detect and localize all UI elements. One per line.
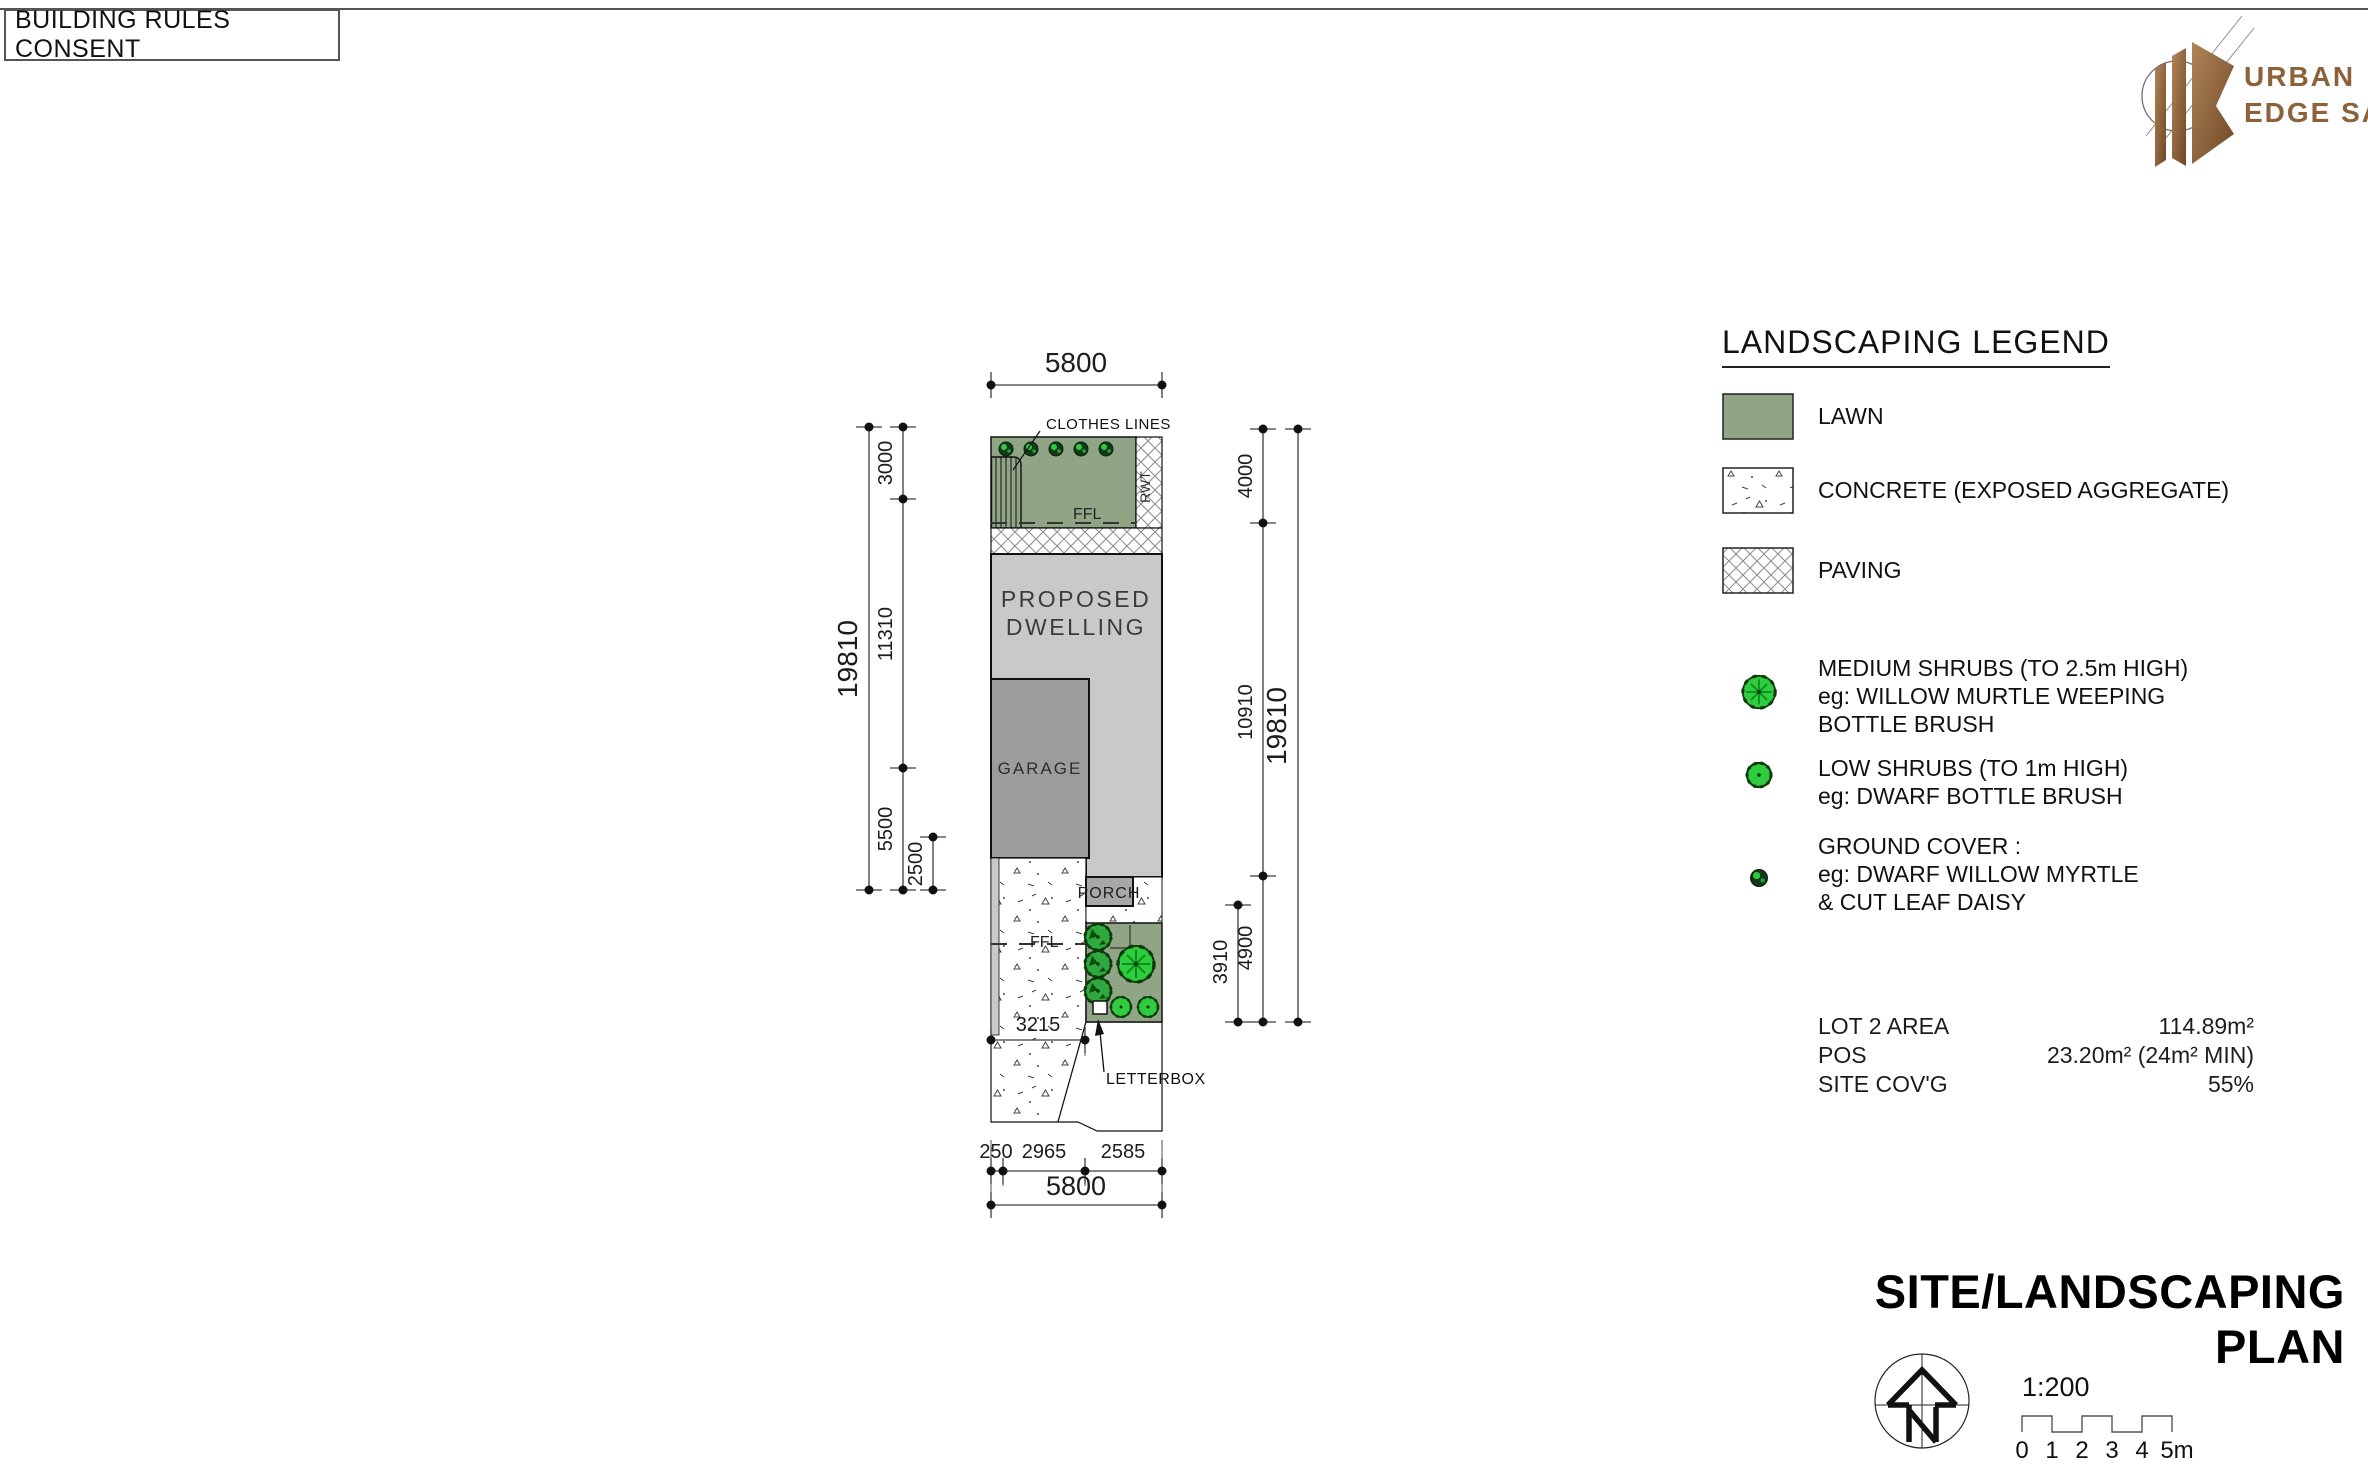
consent-title-label: BUILDING RULES CONSENT <box>15 6 338 64</box>
dim-left-seg-1: 3000 <box>875 441 897 486</box>
dwelling-label-1: PROPOSED <box>1001 586 1151 612</box>
legend-ground-line3: & CUT LEAF DAISY <box>1818 888 2139 916</box>
sheet-top-rule <box>0 8 2368 10</box>
stat-lot-area: LOT 2 AREA 114.89m² <box>1818 1012 2254 1041</box>
dim-front-offset: 3215 <box>1016 1014 1061 1036</box>
side-wall-strip <box>991 858 999 1035</box>
ground-cover-icon <box>1049 442 1063 456</box>
stat-pos-label: POS <box>1818 1041 1867 1070</box>
scale-label: 1:200 <box>2022 1372 2090 1403</box>
dim-bot-seg-1: 250 <box>979 1141 1012 1163</box>
drawing-sheet: BUILDING RULES CONSENT URBAN EDGE SA <box>0 0 2368 1483</box>
legend-item-lawn: LAWN <box>1722 393 1884 440</box>
dim-right-seg-2: 10910 <box>1235 684 1257 740</box>
medium-shrub-icon <box>1118 946 1154 982</box>
ground-cover-icon <box>1747 866 1771 890</box>
dim-left-seg-2: 11310 <box>875 607 897 661</box>
stat-site-coverage-label: SITE COV'G <box>1818 1070 1948 1099</box>
dim-left-total: 19810 <box>832 620 863 698</box>
legend-text-low-shrubs: LOW SHRUBS (TO 1m HIGH) eg: DWARF BOTTLE… <box>1818 754 2128 810</box>
site-statistics: LOT 2 AREA 114.89m² POS 23.20m² (24m² MI… <box>1818 1012 2254 1099</box>
legend-text-medium-shrubs: MEDIUM SHRUBS (TO 2.5m HIGH) eg: WILLOW … <box>1818 654 2188 738</box>
scale-bar-ticks: 0 1 2 3 4 5m <box>2015 1437 2193 1464</box>
dim-left-seg-3: 5500 <box>875 807 897 852</box>
plan-title: SITE/LANDSCAPING PLAN <box>1740 1264 2345 1374</box>
logo-mark-icon <box>2142 16 2254 167</box>
stat-pos-value: 23.20m² (24m² MIN) <box>2047 1041 2254 1070</box>
stat-site-coverage-value: 55% <box>2208 1070 2254 1099</box>
low-shrub-icon <box>1742 758 1776 792</box>
north-arrow-icon <box>1866 1342 1978 1460</box>
ground-cover-icon <box>1074 442 1088 456</box>
landscaping-legend: LANDSCAPING LEGEND LAWN CONCRETE (EXPOSE… <box>1722 318 2342 1118</box>
stat-lot-area-label: LOT 2 AREA <box>1818 1012 1949 1041</box>
concrete-swatch-icon <box>1722 467 1794 514</box>
legend-medium-line3: BOTTLE BRUSH <box>1818 710 2188 738</box>
letterbox-symbol <box>1093 1001 1107 1014</box>
ffl-front-label: FFL <box>1030 934 1059 951</box>
dwelling-label-2: DWELLING <box>1006 614 1146 640</box>
garage-label: GARAGE <box>998 759 1083 778</box>
dim-bot-seg-3: 2585 <box>1101 1141 1146 1163</box>
legend-item-paving: PAVING <box>1722 547 1902 594</box>
medium-shrub-icon <box>1085 978 1111 1004</box>
stat-site-coverage: SITE COV'G 55% <box>1818 1070 2254 1099</box>
dim-top-width: 5800 <box>1045 347 1107 378</box>
medium-shrub-icon <box>1085 951 1111 977</box>
clothes-lines-label: CLOTHES LINES <box>1046 416 1171 433</box>
dim-right-seg-1: 4000 <box>1235 454 1257 499</box>
scale-tick-1: 1 <box>2045 1437 2058 1464</box>
dim-left-inner: 2500 <box>905 842 927 887</box>
legend-label-concrete: CONCRETE (EXPOSED AGGREGATE) <box>1818 477 2229 504</box>
rwt-label: RWT <box>1137 471 1153 503</box>
medium-shrub-icon <box>1737 670 1781 714</box>
legend-label-paving: PAVING <box>1818 557 1902 584</box>
scale-tick-4: 4 <box>2135 1437 2148 1464</box>
legend-item-medium-shrubs <box>1737 670 1781 719</box>
scale-tick-5: 5m <box>2160 1437 2193 1464</box>
low-shrub-icon <box>1111 997 1131 1017</box>
scale-tick-3: 3 <box>2105 1437 2118 1464</box>
logo-line2: EDGE SA <box>2244 97 2368 128</box>
legend-medium-line1: MEDIUM SHRUBS (TO 2.5m HIGH) <box>1818 654 2188 682</box>
letterbox-label: LETTERBOX <box>1106 1071 1206 1088</box>
legend-item-low-shrubs <box>1742 758 1776 797</box>
dim-right-seg-3: 4900 <box>1235 926 1257 971</box>
legend-text-ground-cover: GROUND COVER : eg: DWARF WILLOW MYRTLE &… <box>1818 832 2139 916</box>
site-plan: CLOTHES LINES RWT FFL PROPOSED DWELLING … <box>830 340 1330 1250</box>
legend-ground-line1: GROUND COVER : <box>1818 832 2139 860</box>
ground-cover-icon <box>999 442 1013 456</box>
legend-low-line2: eg: DWARF BOTTLE BRUSH <box>1818 782 2128 810</box>
dim-bottom-width: 5800 <box>1046 1171 1106 1201</box>
dim-right-total: 19810 <box>1261 687 1292 765</box>
dim-right-inner: 3910 <box>1210 940 1232 985</box>
legend-label-lawn: LAWN <box>1818 403 1884 430</box>
legend-title: LANDSCAPING LEGEND <box>1722 324 2110 368</box>
legend-item-concrete: CONCRETE (EXPOSED AGGREGATE) <box>1722 467 2229 514</box>
consent-title-box: BUILDING RULES CONSENT <box>4 9 340 61</box>
dim-bot-seg-2: 2965 <box>1022 1141 1067 1163</box>
scale-bar: 0 1 2 3 4 5m <box>2010 1406 2210 1464</box>
scale-tick-0: 0 <box>2015 1437 2028 1464</box>
medium-shrub-icon <box>1085 924 1111 950</box>
stat-lot-area-value: 114.89m² <box>2159 1012 2254 1041</box>
ground-cover-icon <box>1099 442 1113 456</box>
stat-pos: POS 23.20m² (24m² MIN) <box>1818 1041 2254 1070</box>
ffl-rear-label: FFL <box>1073 506 1102 523</box>
legend-ground-line2: eg: DWARF WILLOW MYRTLE <box>1818 860 2139 888</box>
scale-bar-crenellation <box>2022 1416 2172 1432</box>
low-shrub-icon <box>1138 997 1158 1017</box>
paving-strip <box>991 528 1162 554</box>
urban-edge-logo: URBAN EDGE SA <box>2124 14 2368 184</box>
paving-swatch-icon <box>1722 547 1794 594</box>
scale-tick-2: 2 <box>2075 1437 2088 1464</box>
legend-low-line1: LOW SHRUBS (TO 1m HIGH) <box>1818 754 2128 782</box>
legend-medium-line2: eg: WILLOW MURTLE WEEPING <box>1818 682 2188 710</box>
logo-line1: URBAN <box>2244 61 2355 92</box>
logo-text: URBAN EDGE SA <box>2244 61 2368 128</box>
legend-item-ground-cover <box>1747 866 1771 895</box>
porch-label: PORCH <box>1078 885 1141 902</box>
lawn-swatch-icon <box>1722 393 1794 440</box>
